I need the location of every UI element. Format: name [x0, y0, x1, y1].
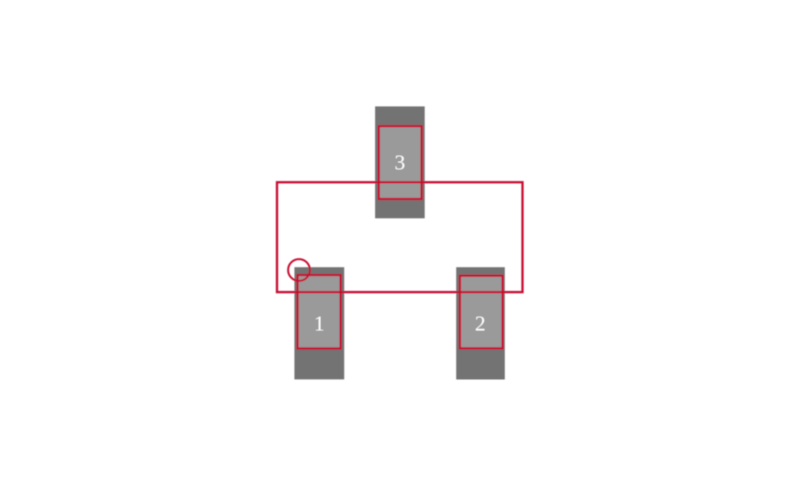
svg-text:2: 2	[475, 312, 486, 336]
svg-text:1: 1	[314, 312, 325, 336]
svg-text:3: 3	[395, 150, 406, 174]
